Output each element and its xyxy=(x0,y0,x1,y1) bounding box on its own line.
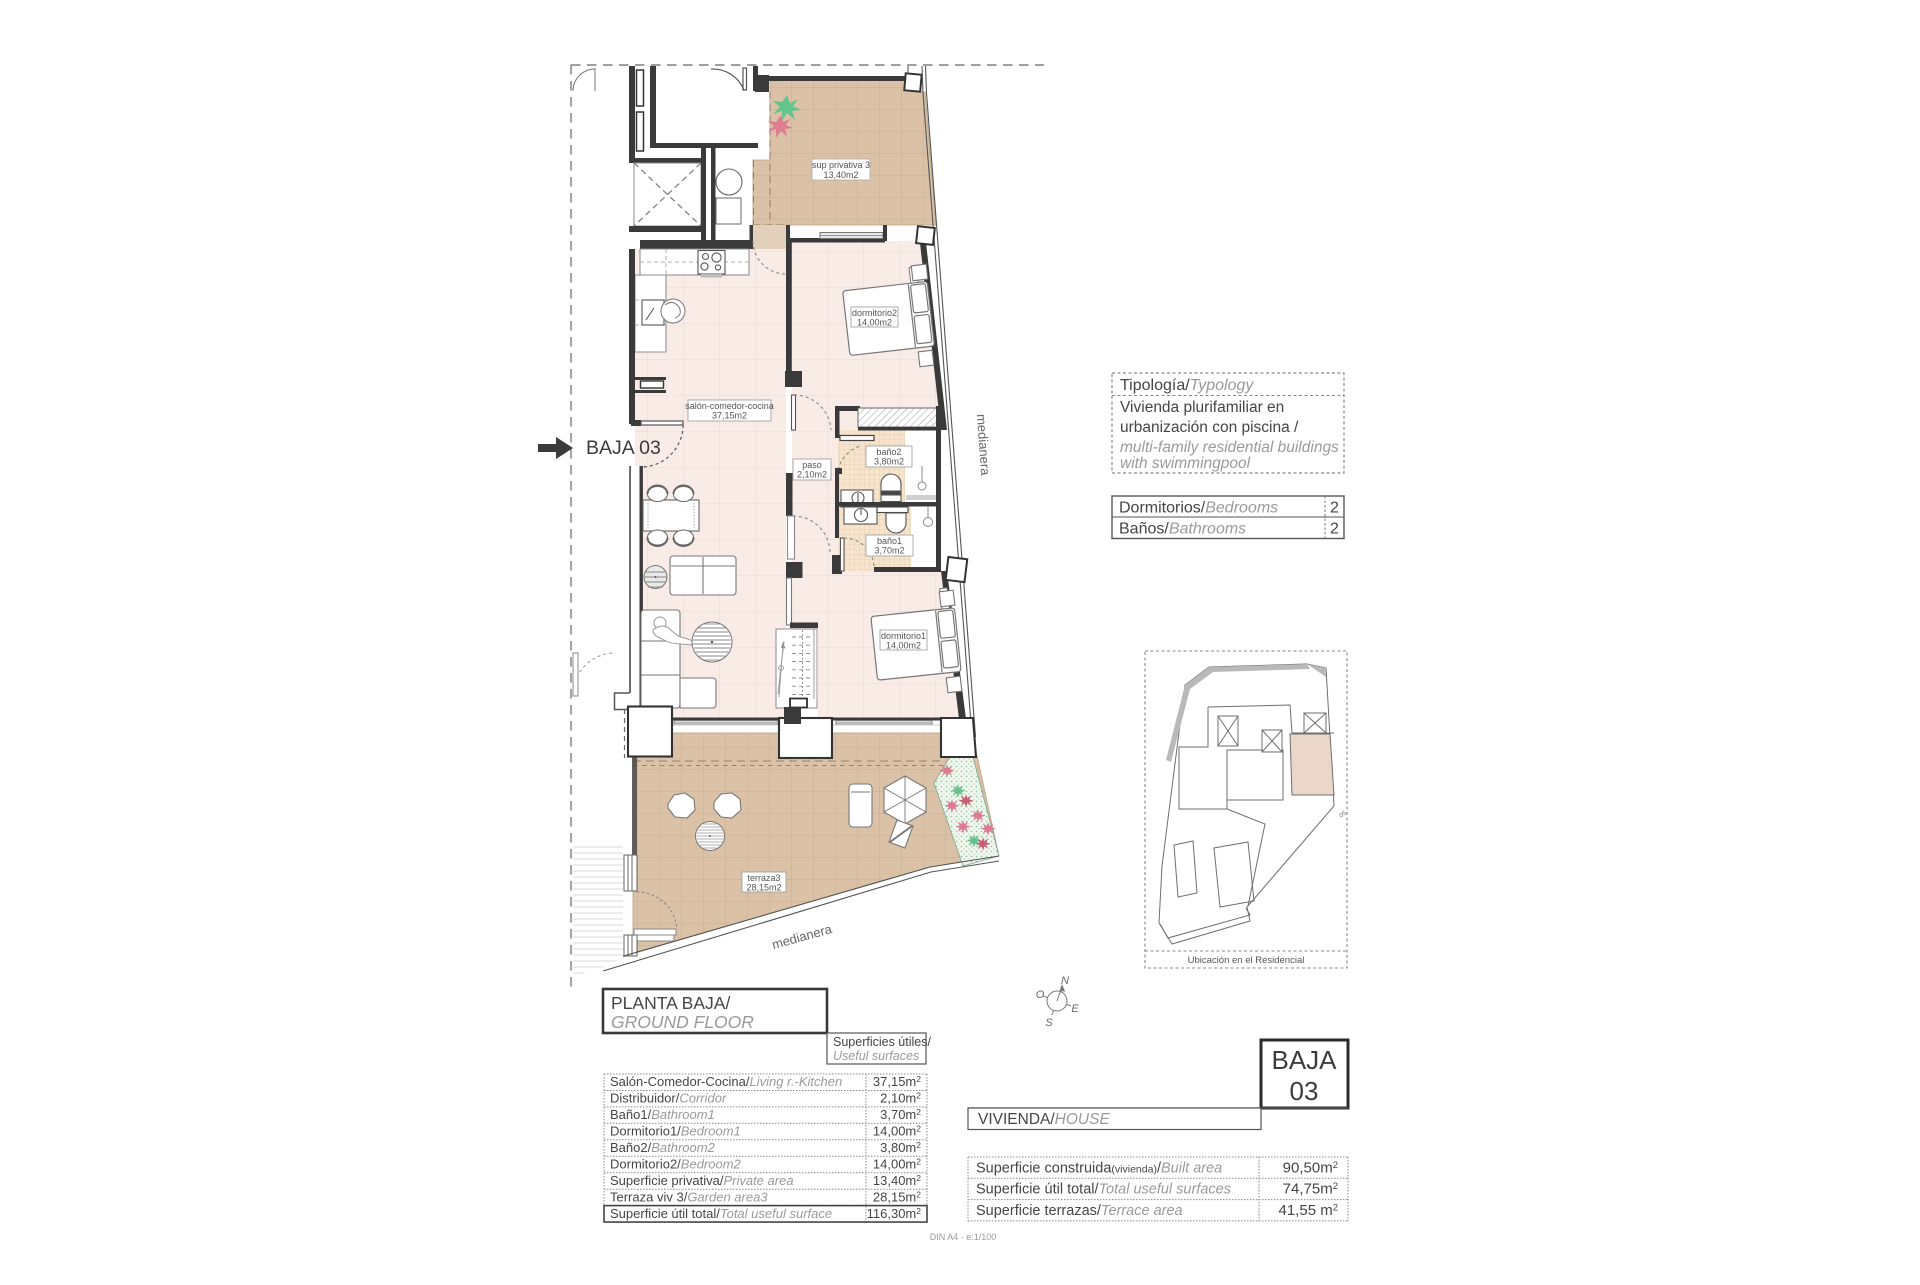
svg-text:Superficie construida(vivienda: Superficie construida(vivienda)/Built ar… xyxy=(976,1160,1222,1176)
svg-text:2: 2 xyxy=(1330,500,1339,517)
svg-text:3,80m2: 3,80m2 xyxy=(880,1140,921,1155)
svg-text:14,00m2: 14,00m2 xyxy=(873,1124,921,1139)
svg-text:Dormitorios/Bedrooms: Dormitorios/Bedrooms xyxy=(1119,500,1278,517)
svg-text:Superficies útiles/: Superficies útiles/ xyxy=(833,1035,931,1049)
svg-text:2: 2 xyxy=(1330,521,1339,538)
svg-text:S: S xyxy=(1045,1017,1053,1029)
svg-text:90,50m2: 90,50m2 xyxy=(1283,1159,1338,1176)
svg-text:dormitorio2: dormitorio2 xyxy=(852,308,897,318)
svg-text:03: 03 xyxy=(1290,1076,1319,1106)
svg-text:N: N xyxy=(1061,975,1069,987)
svg-text:2,10m2: 2,10m2 xyxy=(880,1091,921,1106)
svg-text:Vivienda plurifamiliar en: Vivienda plurifamiliar en xyxy=(1120,399,1284,416)
svg-text:baño1: baño1 xyxy=(877,536,902,546)
svg-text:Baños/Bathrooms: Baños/Bathrooms xyxy=(1119,521,1246,538)
svg-text:13,40m2: 13,40m2 xyxy=(873,1173,921,1188)
svg-text:baño2: baño2 xyxy=(876,447,901,457)
svg-text:3,80m2: 3,80m2 xyxy=(874,457,904,467)
svg-text:Tipología/Typology: Tipología/Typology xyxy=(1120,377,1254,394)
svg-text:14,00m2: 14,00m2 xyxy=(857,318,892,328)
svg-text:PLANTA BAJA/: PLANTA BAJA/ xyxy=(611,993,730,1013)
svg-text:Dormitorio1/Bedroom1: Dormitorio1/Bedroom1 xyxy=(610,1124,741,1139)
svg-text:37,15m2: 37,15m2 xyxy=(712,411,747,421)
svg-text:DIN A4 · e:1/100: DIN A4 · e:1/100 xyxy=(930,1232,997,1242)
svg-text:VIVIENDA/HOUSE: VIVIENDA/HOUSE xyxy=(978,1111,1110,1128)
svg-text:74,75m2: 74,75m2 xyxy=(1283,1181,1338,1198)
svg-text:28,15m2: 28,15m2 xyxy=(746,883,781,893)
svg-text:multi-family residential build: multi-family residential buildings xyxy=(1120,439,1339,456)
svg-text:28,15m2: 28,15m2 xyxy=(873,1189,921,1204)
svg-text:Useful surfaces: Useful surfaces xyxy=(833,1049,919,1063)
svg-text:Dormitorio2/Bedroom2: Dormitorio2/Bedroom2 xyxy=(610,1157,742,1172)
svg-text:Superficie privativa/Private a: Superficie privativa/Private area xyxy=(610,1173,794,1188)
svg-text:BAJA 03: BAJA 03 xyxy=(586,437,661,459)
svg-text:Superficie útil total/Total us: Superficie útil total/Total useful surfa… xyxy=(976,1182,1231,1198)
svg-text:paso: paso xyxy=(802,460,822,470)
svg-text:terraza3: terraza3 xyxy=(747,873,780,883)
svg-text:BAJA: BAJA xyxy=(1271,1045,1337,1075)
svg-text:13,40m2: 13,40m2 xyxy=(823,170,858,180)
svg-text:37,15m2: 37,15m2 xyxy=(873,1074,921,1089)
svg-text:GROUND FLOOR: GROUND FLOOR xyxy=(611,1012,754,1032)
svg-text:Superficie útil total/Total us: Superficie útil total/Total useful surfa… xyxy=(610,1206,832,1221)
svg-text:14,00m2: 14,00m2 xyxy=(873,1157,921,1172)
svg-text:with swimmingpool: with swimmingpool xyxy=(1120,455,1251,472)
svg-text:dormitorio1: dormitorio1 xyxy=(881,631,926,641)
svg-text:2,10m2: 2,10m2 xyxy=(797,470,827,480)
svg-text:urbanización con piscina /: urbanización con piscina / xyxy=(1120,419,1299,436)
svg-text:Baño1/Bathroom1: Baño1/Bathroom1 xyxy=(610,1107,715,1122)
svg-text:Terraza viv 3/Garden area3: Terraza viv 3/Garden area3 xyxy=(610,1189,768,1204)
svg-text:Baño2/Bathroom2: Baño2/Bathroom2 xyxy=(610,1140,716,1155)
svg-text:41,55 m2: 41,55 m2 xyxy=(1279,1202,1339,1219)
svg-text:salón-comedor-cocina: salón-comedor-cocina xyxy=(685,401,774,411)
svg-text:sup privativa 3: sup privativa 3 xyxy=(812,160,870,170)
svg-text:3,70m2: 3,70m2 xyxy=(874,546,904,556)
svg-text:Superficie terrazas/Terrace ar: Superficie terrazas/Terrace area xyxy=(976,1203,1183,1219)
svg-text:E: E xyxy=(1071,1003,1079,1015)
svg-text:Salón-Comedor-Cocina/Living r.: Salón-Comedor-Cocina/Living r.-Kitchen xyxy=(610,1074,842,1089)
svg-text:14,00m2: 14,00m2 xyxy=(886,641,921,651)
svg-text:Ubicación en el Residencial: Ubicación en el Residencial xyxy=(1188,955,1305,966)
svg-text:Distribuidor/Corridor: Distribuidor/Corridor xyxy=(610,1091,727,1106)
svg-text:116,30m2: 116,30m2 xyxy=(867,1206,922,1221)
svg-text:O: O xyxy=(1036,989,1045,1001)
svg-text:3,70m2: 3,70m2 xyxy=(880,1107,921,1122)
